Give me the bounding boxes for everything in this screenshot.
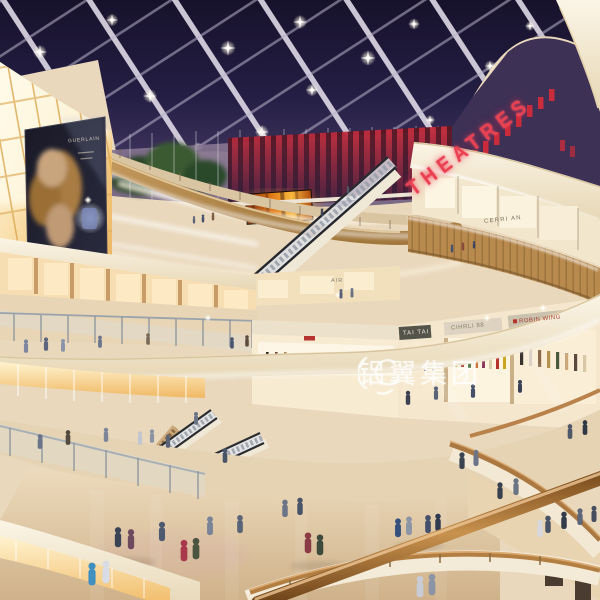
watermark: 铝翼集团 xyxy=(358,352,482,391)
shop-sign-air: AIR xyxy=(331,279,343,285)
watermark-swirl-logo xyxy=(358,352,398,396)
shop-logo-red-square xyxy=(513,319,517,323)
atrium-scene xyxy=(0,0,600,600)
perfume-bottle xyxy=(82,208,97,229)
mall-atrium-rendering: THEATRES CERRI AN AIR TAI TAI CIHRLI 88 … xyxy=(0,0,600,600)
